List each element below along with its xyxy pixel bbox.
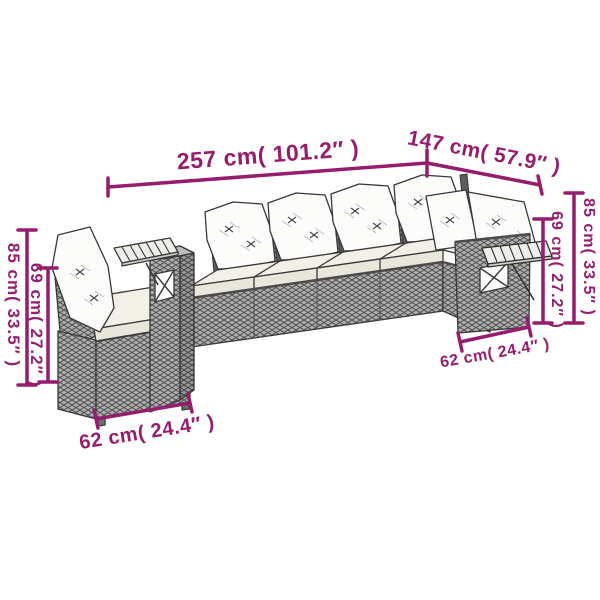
chair-side-panel	[58, 331, 96, 419]
column-front-face	[150, 246, 180, 412]
dim-label-left-total-height: 85 cm( 33.5″ )	[3, 243, 23, 367]
dim-label-right-total-height: 85 cm( 33.5″ )	[579, 198, 597, 316]
dim-label-left-back-height: 69 cm( 27.2″ )	[26, 263, 46, 387]
sofa-line-art	[0, 0, 600, 600]
product-dimension-image: 257 cm( 101.2″ ) 147 cm( 57.9″ ) 85 cm( …	[0, 0, 600, 600]
dim-label-right-back-height: 69 cm( 27.2″ )	[547, 211, 565, 329]
